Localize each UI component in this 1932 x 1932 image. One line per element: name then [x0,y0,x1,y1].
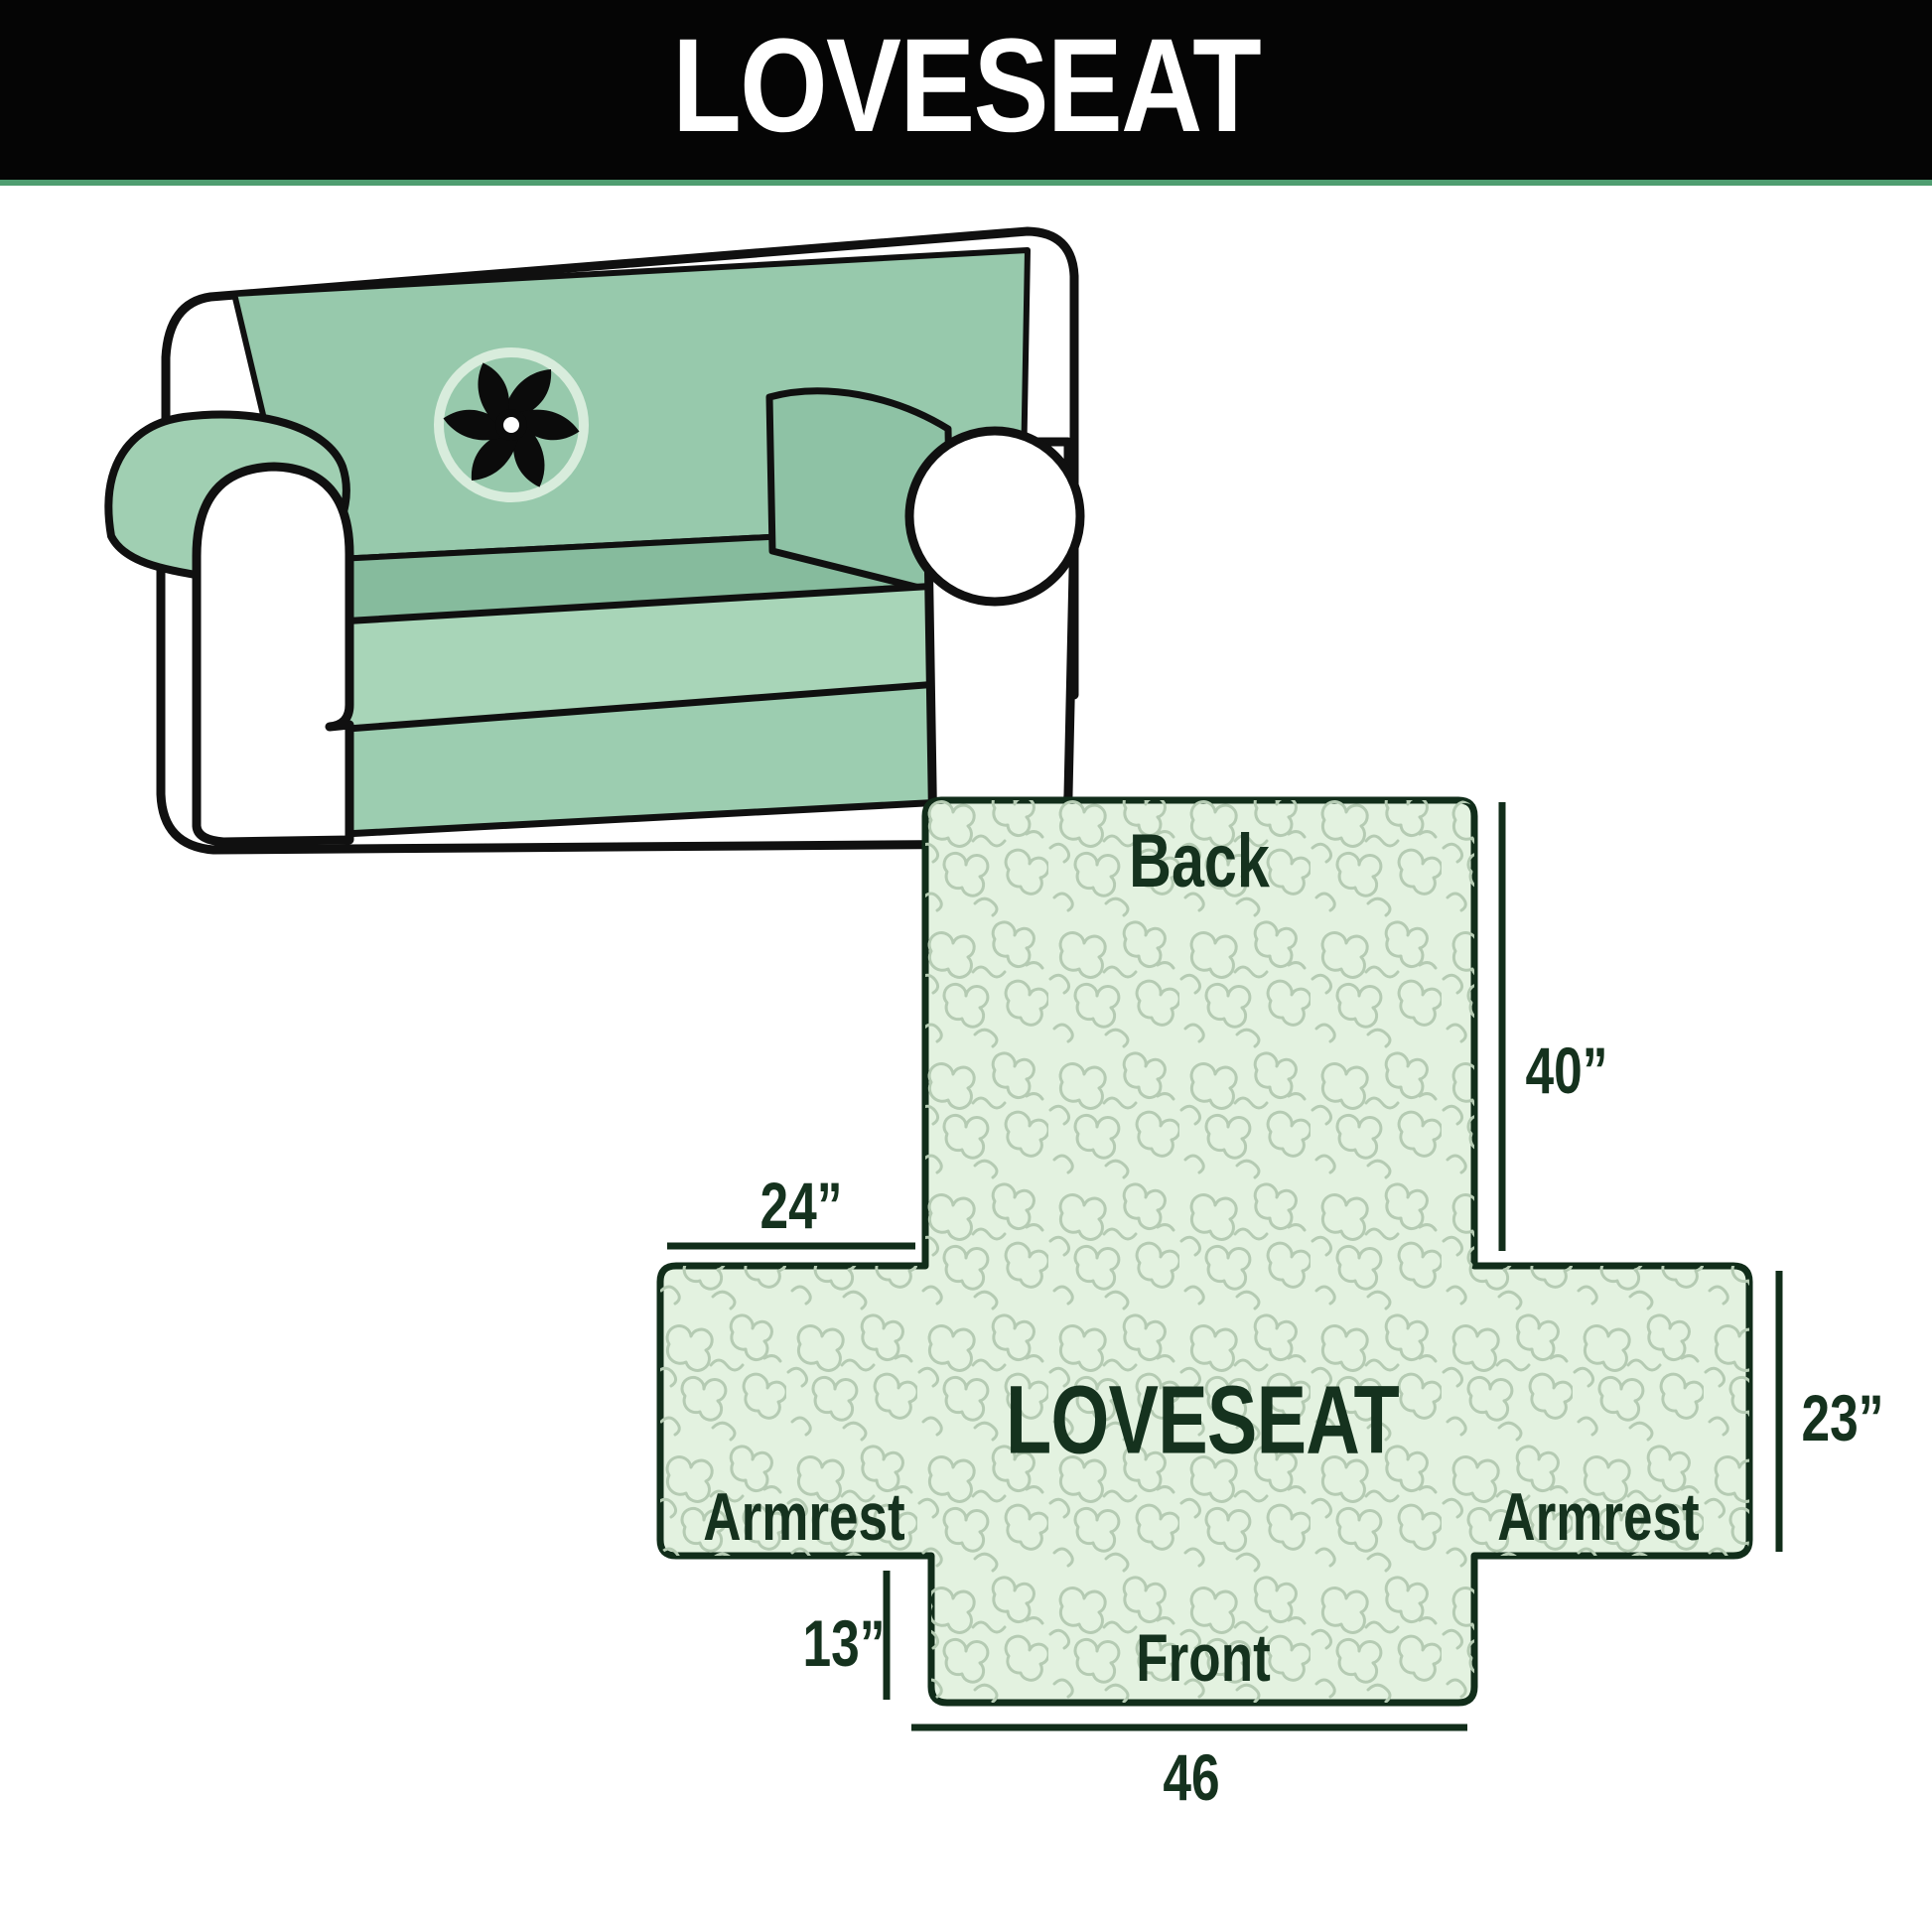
loveseat-illustration [108,231,1080,850]
dimension-40: 40” [1525,1037,1607,1103]
illustration-and-diagram-canvas [0,0,1932,1932]
right-arm-roll [909,431,1080,602]
dimension-24: 24” [759,1173,842,1238]
dimension-23: 23” [1801,1385,1883,1450]
page: { "header": { "title": "LOVESEAT" }, "il… [0,0,1932,1932]
header-bar: LOVESEAT [0,0,1932,186]
loveseat-center-label: LOVESEAT [1006,1372,1399,1468]
dimension-46: 46 [1163,1744,1219,1810]
dimension-13: 13” [802,1610,885,1676]
left-arm-front [197,467,349,842]
page-title: LOVESEAT [672,20,1260,161]
armrest-left-label: Armrest [703,1483,904,1551]
armrest-right-label: Armrest [1497,1483,1699,1551]
cover-diagram [660,800,1779,1727]
front-label: Front [1136,1624,1271,1692]
back-label: Back [1129,824,1270,899]
cover-quilting-texture [660,800,1749,1703]
